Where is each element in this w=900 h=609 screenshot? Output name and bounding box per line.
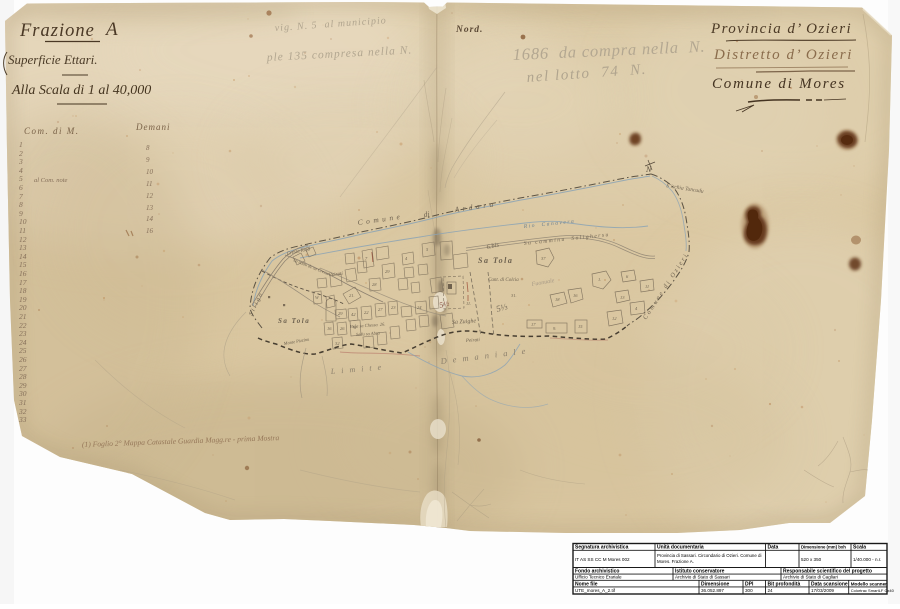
svg-text:25: 25 (19, 346, 27, 355)
svg-text:3: 3 (18, 157, 23, 166)
svg-text:29: 29 (385, 269, 390, 274)
svg-text:al Com. note: al Com. note (34, 177, 68, 184)
svg-text:28: 28 (372, 282, 377, 287)
svg-text:Bit profondità: Bit profondità (768, 581, 801, 587)
svg-text:11: 11 (146, 180, 152, 188)
svg-text:26: 26 (340, 326, 345, 331)
svg-text:di: di (423, 209, 430, 219)
svg-text:24: 24 (417, 305, 422, 310)
svg-text:31.: 31. (511, 293, 517, 298)
svg-text:Istituto conservatore: Istituto conservatore (675, 569, 725, 575)
svg-text:Segnatura archivistica: Segnatura archivistica (575, 545, 629, 551)
svg-text:11: 11 (19, 226, 26, 235)
svg-text:30: 30 (18, 389, 27, 398)
svg-text:13: 13 (620, 295, 625, 300)
svg-text:Sa Tola: Sa Tola (478, 256, 513, 265)
svg-text:33: 33 (18, 415, 27, 424)
svg-text:DPI: DPI (745, 581, 754, 587)
svg-text:16: 16 (146, 227, 154, 235)
svg-text:21: 21 (19, 312, 27, 321)
svg-text:16: 16 (573, 293, 578, 298)
svg-text:Unità documentaria: Unità documentaria (657, 545, 704, 551)
svg-text:Colortrac SmartLF Cx40: Colortrac SmartLF Cx40 (851, 588, 895, 593)
svg-text:Comune di Mores: Comune di Mores (712, 76, 846, 92)
svg-text:23: 23 (391, 305, 396, 310)
svg-text:37: 37 (541, 256, 546, 261)
svg-text:IT AS SS CC M Mores 002: IT AS SS CC M Mores 002 (575, 557, 630, 562)
svg-text:36.052.897: 36.052.897 (701, 588, 724, 593)
svg-text:Fondo archivistico: Fondo archivistico (575, 569, 619, 575)
svg-text:27: 27 (378, 307, 383, 312)
svg-text:Com. di M.: Com. di M. (24, 126, 80, 136)
svg-text:Data scansione: Data scansione (811, 581, 848, 587)
svg-text:Nome file: Nome file (575, 581, 598, 587)
svg-text:18: 18 (19, 286, 27, 295)
svg-text:Nord.: Nord. (455, 25, 483, 35)
svg-text:Distretto d’ Ozieri: Distretto d’ Ozieri (713, 47, 853, 63)
svg-text:Modello scanner: Modello scanner (851, 581, 887, 586)
svg-text:16: 16 (327, 326, 332, 331)
svg-text:520 x 350: 520 x 350 (801, 557, 822, 562)
svg-text:26: 26 (19, 355, 27, 364)
svg-text:10: 10 (146, 168, 154, 176)
svg-text:300: 300 (745, 588, 753, 593)
svg-text:11.: 11. (466, 301, 471, 306)
svg-text:Ufficio Tecnico Erariale: Ufficio Tecnico Erariale (575, 575, 622, 580)
svg-text:9.: 9. (553, 326, 556, 331)
svg-text:Demani: Demani (135, 122, 171, 132)
svg-text:Superficie Ettari.: Superficie Ettari. (8, 52, 98, 67)
svg-text:17/03/2009: 17/03/2009 (811, 588, 834, 593)
svg-text:12: 12 (612, 316, 617, 321)
svg-text:Mores. Frazione A.: Mores. Frazione A. (657, 559, 694, 564)
svg-text:Archivio di Stato di Sassari: Archivio di Stato di Sassari (675, 575, 730, 580)
svg-text:Data: Data (768, 545, 779, 551)
svg-text:31: 31 (18, 398, 27, 407)
svg-text:32: 32 (335, 341, 340, 346)
svg-text:Provincia d’ Ozieri: Provincia d’ Ozieri (710, 21, 852, 37)
svg-text:22: 22 (364, 310, 369, 315)
svg-text:Scala: Scala (853, 545, 866, 551)
svg-text:29: 29 (338, 311, 343, 316)
svg-text:N: N (645, 165, 652, 174)
svg-text:18: 18 (555, 297, 560, 302)
svg-text:21.: 21. (349, 293, 355, 298)
svg-text:Responsabile scientifico del p: Responsabile scientifico del progetto (783, 569, 872, 575)
svg-text:16: 16 (19, 269, 27, 278)
svg-text:Dimensione: Dimensione (701, 581, 730, 587)
svg-text:Frazione: Frazione (19, 21, 95, 41)
svg-text:A: A (104, 19, 118, 40)
svg-text:8: 8 (146, 144, 150, 152)
svg-text:9: 9 (146, 156, 150, 164)
svg-text:42: 42 (351, 312, 356, 317)
svg-text:Archivio di Stato di Cagliari: Archivio di Stato di Cagliari (783, 575, 838, 580)
svg-text:20: 20 (19, 303, 27, 312)
svg-text:1/40.000 - n.r.: 1/40.000 - n.r. (853, 557, 881, 562)
svg-text:5: 5 (19, 174, 23, 183)
svg-text:15: 15 (19, 260, 27, 269)
svg-text:1.: 1. (598, 277, 601, 282)
svg-text:Sa Tola: Sa Tola (278, 317, 310, 325)
svg-text:13: 13 (19, 243, 27, 252)
svg-text:Dimensione (mm) bxh: Dimensione (mm) bxh (801, 545, 846, 550)
svg-text:15: 15 (578, 324, 583, 329)
svg-text:1: 1 (19, 140, 23, 149)
svg-text:Alla Scala di 1 al 40,000: Alla Scala di 1 al 40,000 (11, 83, 151, 98)
svg-text:8: 8 (19, 200, 23, 209)
svg-text:10: 10 (19, 217, 27, 226)
svg-text:6: 6 (19, 183, 23, 192)
svg-text:23: 23 (19, 329, 27, 338)
svg-text:28: 28 (19, 372, 27, 381)
svg-text:Provincia di Sassari. Circonda: Provincia di Sassari. Circondario di Ozi… (657, 553, 761, 558)
svg-text:24: 24 (768, 588, 774, 593)
svg-text:12: 12 (146, 192, 154, 200)
svg-text:14: 14 (146, 215, 154, 223)
svg-text:Cant. di Colcia: Cant. di Colcia (488, 278, 519, 283)
svg-text:11: 11 (645, 284, 649, 289)
svg-text:13: 13 (146, 204, 154, 212)
svg-text:17: 17 (531, 322, 536, 327)
svg-text:UTE_mores_A_2.tif: UTE_mores_A_2.tif (575, 588, 616, 593)
